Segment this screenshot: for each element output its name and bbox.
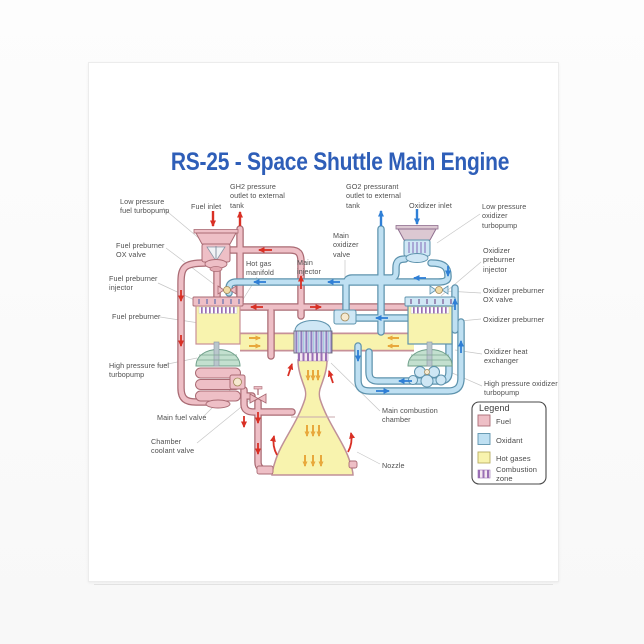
label-main-injector: Main injector <box>297 258 331 277</box>
label-go2-outlet: GO2 pressurant outlet to external tank <box>346 182 416 210</box>
legend-label-fuel: Fuel <box>496 417 511 426</box>
label-fuel-preburner-ox-valve: Fuel preburner OX valve <box>116 241 174 260</box>
main-fuel-valve <box>230 375 245 389</box>
label-lp-fuel-turbopump: Low pressure fuel turbopump <box>120 197 170 216</box>
product-photo: RS-25 - Space Shuttle Main Engine Low pr… <box>0 0 644 644</box>
legend-swatch-fuel <box>478 415 490 426</box>
label-fuel-preburner: Fuel preburner <box>112 312 161 321</box>
label-main-oxidizer-valve: Main oxidizer valve <box>333 231 369 259</box>
label-ox-preburner-ox-valve: Oxidizer preburner OX valve <box>483 286 555 305</box>
label-hot-gas-manifold: Hot gas manifold <box>246 259 284 278</box>
label-gh2-outlet: GH2 pressure outlet to external tank <box>230 182 285 210</box>
legend-swatch-oxidant <box>478 434 490 445</box>
combustion-zone <box>298 353 328 361</box>
fuel-preburner-assembly <box>193 297 243 408</box>
legend-label-oxidant: Oxidant <box>496 436 523 445</box>
label-nozzle: Nozzle <box>382 461 405 470</box>
label-hp-ox-turbopump: High pressure oxidizer turbopump <box>484 379 564 398</box>
main-oxidizer-valve <box>334 310 356 324</box>
page-title: RS-25 - Space Shuttle Main Engine <box>171 148 509 177</box>
label-fuel-inlet: Fuel inlet <box>191 202 221 211</box>
label-lp-ox-turbopump: Low pressure oxidizer turbopump <box>482 202 534 230</box>
label-fuel-preburner-injector: Fuel preburner injector <box>109 274 167 293</box>
label-ox-heat-exchanger: Oxidizer heat exchanger <box>484 347 542 366</box>
label-main-combustion-chamber: Main combustion chamber <box>382 406 448 425</box>
legend-label-hot-gases: Hot gases <box>496 454 531 463</box>
hp-oxidizer-turbopump <box>409 367 447 388</box>
label-ox-preburner: Oxidizer preburner <box>483 315 544 324</box>
engine-schematic <box>0 0 644 644</box>
legend-swatch-combustion-zone <box>478 470 490 478</box>
label-chamber-coolant-valve: Chamber coolant valve <box>151 437 205 456</box>
label-oxidizer-inlet: Oxidizer inlet <box>409 201 452 210</box>
label-ox-preburner-injector: Oxidizer preburner injector <box>483 246 527 274</box>
legend-label-combustion-zone: Combustion zone <box>496 465 548 483</box>
main-injector <box>294 321 332 362</box>
label-hp-fuel-turbopump: High pressure fuel turbopump <box>109 361 171 380</box>
label-main-fuel-valve: Main fuel valve <box>157 413 206 422</box>
legend-title: Legend <box>479 404 510 413</box>
legend-swatch-hot-gases <box>478 452 490 463</box>
